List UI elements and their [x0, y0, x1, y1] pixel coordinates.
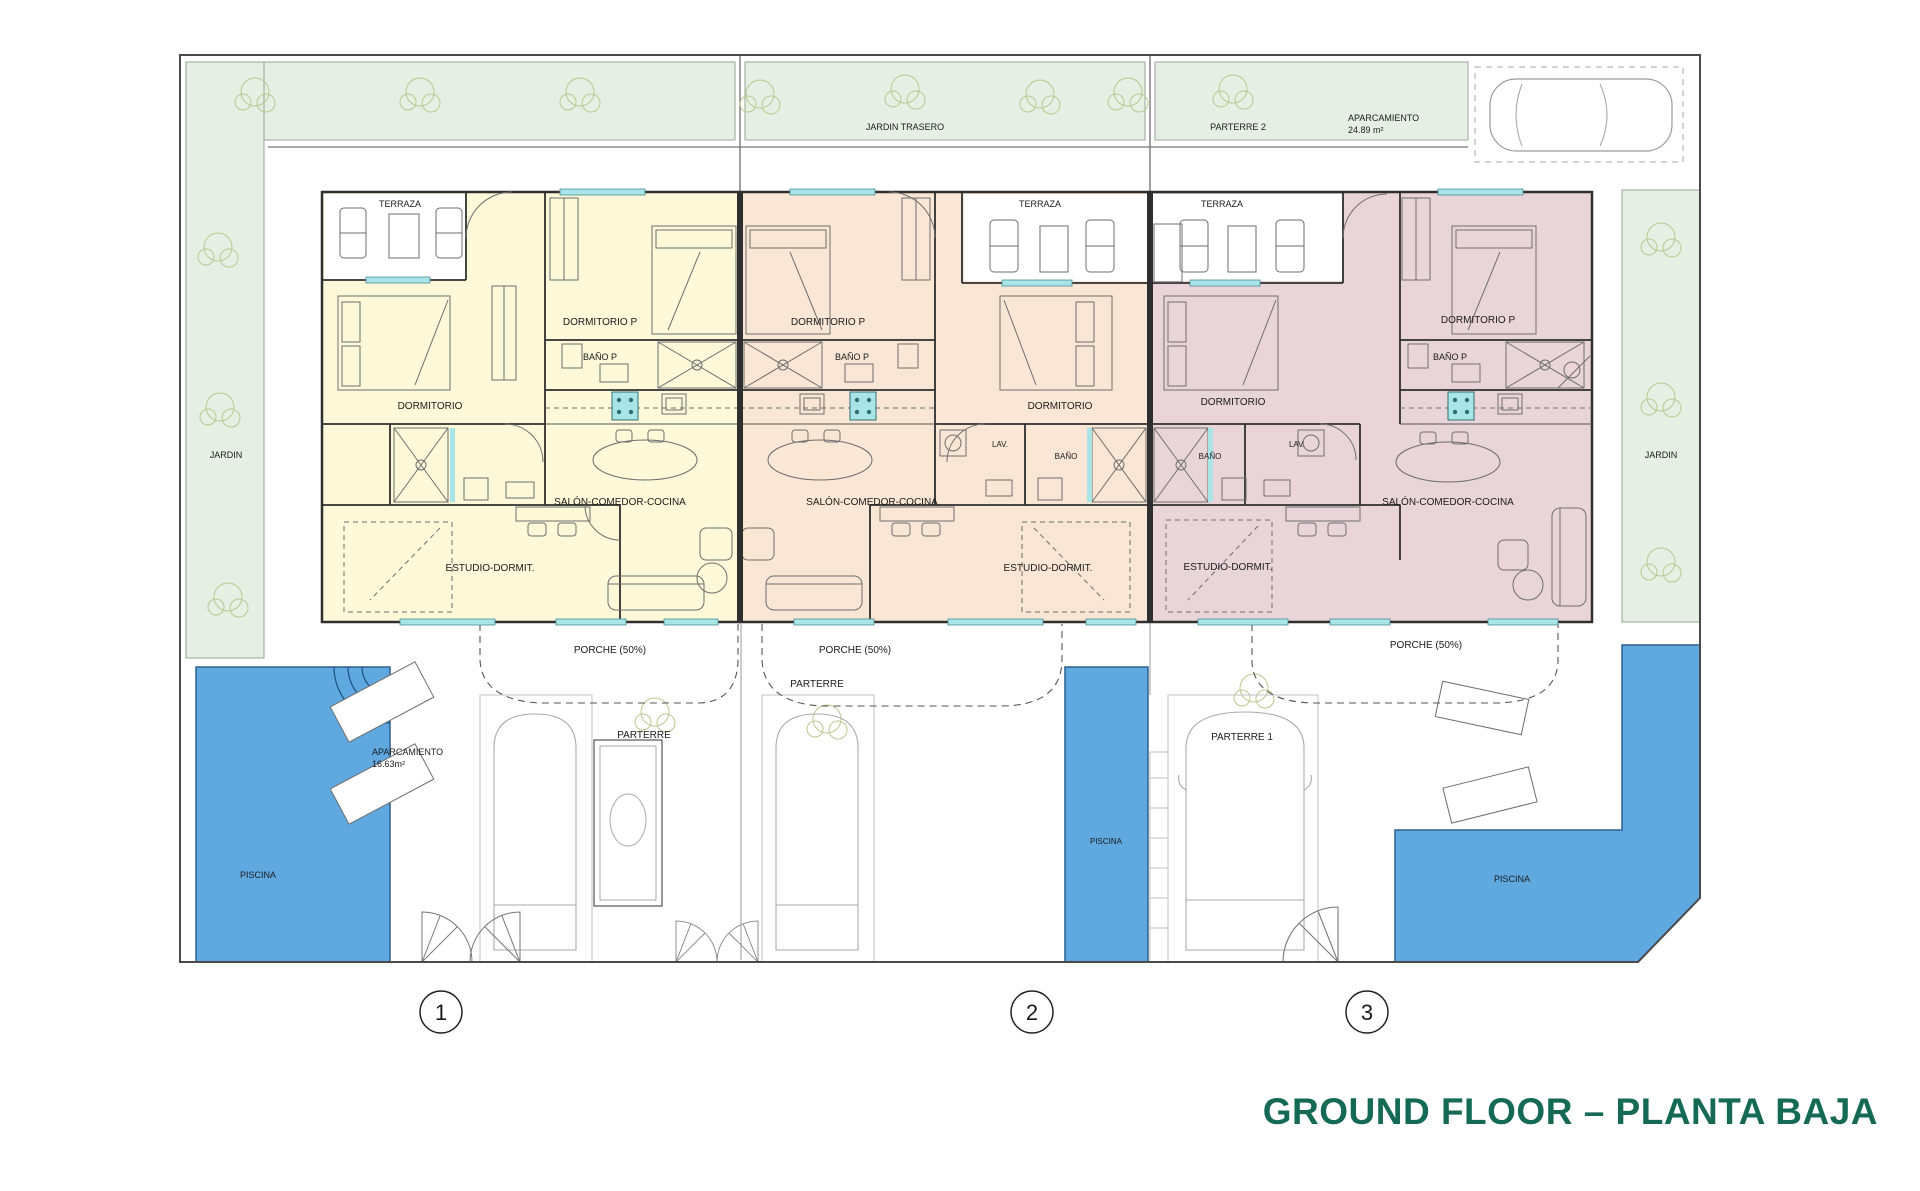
unit3-shower-glass: [1208, 428, 1213, 502]
unit3-number: 3: [1361, 1000, 1373, 1025]
unit1-dormitorio-p-label: DORMITORIO P: [563, 317, 638, 328]
unit2-porche-label: PORCHE (50%): [819, 645, 891, 656]
unit2-salon-label: SALÓN-COMEDOR-COCINA: [806, 495, 938, 508]
unit3-terraza-area: [1152, 194, 1343, 281]
floor-plan-drawing: JARDIN JARDIN TRASERO PARTERRE 2 APARCAM…: [0, 0, 1920, 1191]
aparcamiento-top-label: APARCAMIENTO: [1348, 113, 1419, 123]
unit3-parterre-1-label: PARTERRE 1: [1211, 732, 1273, 743]
unit2-piscina-label: PISCINA: [1090, 837, 1123, 846]
car-top: [1490, 79, 1672, 151]
unit3-stove: [1448, 392, 1474, 420]
unit3-lav-label: LAV.: [1289, 440, 1305, 449]
planter-box: [594, 740, 662, 906]
unit2-bano-label: BAÑO: [1055, 452, 1078, 461]
unit2-terraza-label: TERRAZA: [1019, 199, 1061, 209]
unit2-estudio-label: ESTUDIO-DORMIT.: [1004, 563, 1093, 574]
unit1-number: 1: [435, 1000, 447, 1025]
car-bay1: [494, 714, 576, 950]
unit-1-floorplan: [322, 189, 740, 625]
unit1-shower-glass: [450, 428, 455, 502]
jardin-right-label: JARDIN: [1645, 450, 1678, 460]
jardin-left-label: JARDIN: [210, 450, 243, 460]
unit1-stove: [612, 392, 638, 420]
unit3-dormitorio-label: DORMITORIO: [1201, 397, 1266, 408]
party-wall-2-3: [1147, 192, 1153, 622]
car-bay2: [776, 714, 858, 950]
unit1-bano-p-label: BAÑO P: [583, 352, 617, 362]
unit1-aparcamiento-area: 16.63m²: [372, 759, 405, 769]
unit2-stove: [850, 392, 876, 420]
pool-unit2: [1065, 667, 1148, 962]
unit3-piscina-label: PISCINA: [1494, 874, 1530, 884]
unit1-porche-label: PORCHE (50%): [574, 645, 646, 656]
porche-boundaries: [480, 624, 1558, 706]
aparcamiento-top-area: 24.89 m²: [1348, 125, 1384, 135]
unit1-parterre-label: PARTERRE: [617, 730, 671, 741]
unit3-bano-p-label: BAÑO P: [1433, 352, 1467, 362]
jardin-trasero-label: JARDIN TRASERO: [866, 122, 944, 132]
parterre-2-label: PARTERRE 2: [1210, 122, 1266, 132]
entry-steps: [1150, 752, 1168, 962]
unit3-terraza-label: TERRAZA: [1201, 199, 1243, 209]
unit1-piscina-label: PISCINA: [240, 870, 276, 880]
unit2-lav-label: LAV.: [992, 440, 1008, 449]
unit1-estudio-label: ESTUDIO-DORMIT.: [446, 563, 535, 574]
party-wall-1-2: [737, 192, 743, 622]
unit3-bano-label: BAÑO: [1199, 452, 1222, 461]
unit3-porche-label: PORCHE (50%): [1390, 640, 1462, 651]
floor-plan-canvas: JARDIN JARDIN TRASERO PARTERRE 2 APARCAM…: [0, 0, 1920, 1191]
unit3-dormitorio-p-label: DORMITORIO P: [1441, 315, 1516, 326]
unit3-estudio-label: ESTUDIO-DORMIT.: [1184, 562, 1273, 573]
unit2-dormitorio-p-label: DORMITORIO P: [791, 317, 866, 328]
driveways: [330, 624, 1537, 962]
unit-number-badges: 1 2 3: [420, 991, 1388, 1033]
page-title: GROUND FLOOR – PLANTA BAJA: [1263, 1091, 1878, 1132]
unit3-salon-label: SALÓN-COMEDOR-COCINA: [1382, 495, 1514, 508]
unit1-salon-label: SALÓN-COMEDOR-COCINA: [554, 495, 686, 508]
unit2-bano-p-label: BAÑO P: [835, 352, 869, 362]
unit2-parterre-label: PARTERRE: [790, 679, 844, 690]
car-bay3: [1179, 712, 1312, 950]
gate-fans: [422, 907, 1338, 962]
unit1-dormitorio-label: DORMITORIO: [398, 401, 463, 412]
unit2-shower-glass: [1087, 428, 1092, 502]
unit2-dormitorio-label: DORMITORIO: [1028, 401, 1093, 412]
top-parking-area: [1475, 67, 1683, 162]
unit2-number: 2: [1026, 1000, 1038, 1025]
unit1-aparcamiento-label: APARCAMIENTO: [372, 747, 443, 757]
unit1-terraza-label: TERRAZA: [379, 199, 421, 209]
